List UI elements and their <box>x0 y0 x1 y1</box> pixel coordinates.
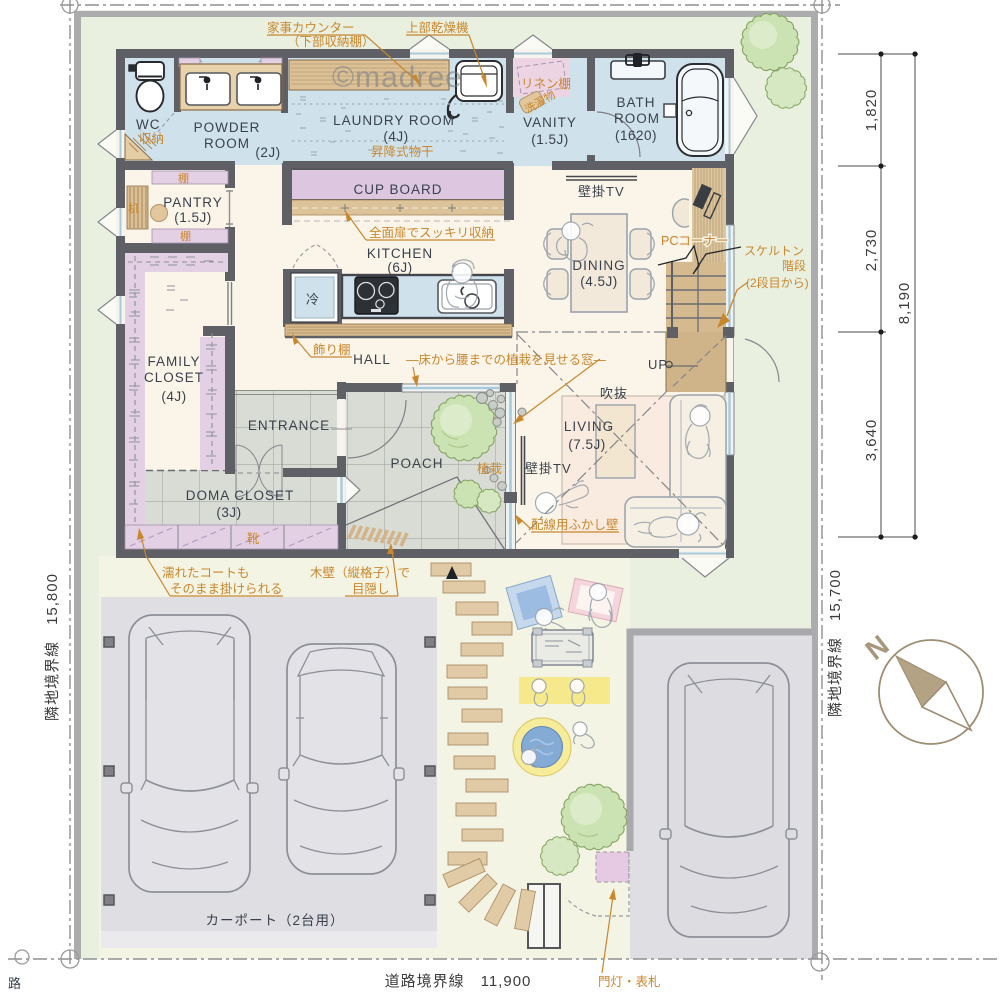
svg-text:©madree: ©madree <box>332 61 463 94</box>
svg-text:—床から腰までの植栽を見せる窓—: —床から腰までの植栽を見せる窓— <box>406 352 607 367</box>
svg-text:CLOSET: CLOSET <box>144 370 204 385</box>
svg-text:DINING: DINING <box>572 258 625 273</box>
svg-text:ENTRANCE: ENTRANCE <box>248 418 330 433</box>
svg-text:2,730: 2,730 <box>863 229 880 272</box>
svg-text:全面扉でスッキリ収納: 全面扉でスッキリ収納 <box>369 225 494 240</box>
svg-text:道路境界線 11,900: 道路境界線 11,900 <box>385 972 532 990</box>
svg-text:BATH: BATH <box>616 95 655 110</box>
svg-text:1,820: 1,820 <box>863 89 880 132</box>
svg-text:KITCHEN: KITCHEN <box>367 246 433 261</box>
svg-text:路: 路 <box>8 976 21 991</box>
svg-text:(4J): (4J) <box>161 389 186 404</box>
svg-text:植栽: 植栽 <box>477 461 503 476</box>
svg-text:WC: WC <box>136 117 161 132</box>
svg-text:隣地境界線 15,800: 隣地境界線 15,800 <box>43 573 61 721</box>
svg-text:POACH: POACH <box>390 456 443 471</box>
svg-text:VANITY: VANITY <box>523 115 577 130</box>
svg-text:門灯・表札: 門灯・表札 <box>598 975 661 989</box>
svg-text:DOMA CLOSET: DOMA CLOSET <box>186 488 295 503</box>
svg-text:机: 机 <box>128 201 139 215</box>
svg-text:(7.5J): (7.5J) <box>568 437 606 452</box>
svg-text:靴: 靴 <box>247 532 260 546</box>
svg-text:配線用ふかし壁: 配線用ふかし壁 <box>531 517 619 532</box>
svg-text:上部乾燥機: 上部乾燥機 <box>406 20 469 35</box>
svg-text:(1620): (1620) <box>615 128 657 143</box>
svg-text:PCコーナー: PCコーナー <box>661 234 728 248</box>
svg-text:ROOM: ROOM <box>204 136 250 151</box>
svg-text:カーポート（2台用）: カーポート（2台用） <box>205 913 344 928</box>
svg-text:階段: 階段 <box>782 258 806 273</box>
svg-text:棚: 棚 <box>178 171 189 185</box>
svg-text:濡れたコートも: 濡れたコートも <box>162 566 250 580</box>
svg-text:LIVING: LIVING <box>564 419 614 434</box>
svg-text:(4J): (4J) <box>383 129 408 144</box>
svg-text:収納: 収納 <box>139 132 164 146</box>
svg-text:HALL: HALL <box>353 352 391 367</box>
svg-text:飾り棚: 飾り棚 <box>313 342 351 357</box>
svg-text:目隠し: 目隠し <box>352 582 390 596</box>
svg-text:CUP BOARD: CUP BOARD <box>353 182 442 197</box>
svg-text:冷: 冷 <box>306 292 320 307</box>
svg-text:LAUNDRY ROOM: LAUNDRY ROOM <box>333 113 455 128</box>
svg-text:(4.5J): (4.5J) <box>580 274 618 289</box>
svg-text:棚: 棚 <box>180 229 191 243</box>
svg-text:壁掛TV: 壁掛TV <box>525 461 572 476</box>
svg-text:（下部収納棚）: （下部収納棚） <box>287 34 375 49</box>
svg-text:そのまま掛けられる: そのまま掛けられる <box>170 581 283 596</box>
svg-text:8,190: 8,190 <box>896 282 913 325</box>
svg-text:壁掛TV: 壁掛TV <box>578 184 625 199</box>
svg-text:隣地境界線 15,700: 隣地境界線 15,700 <box>826 569 844 717</box>
svg-text:家事カウンター: 家事カウンター <box>267 20 355 35</box>
svg-text:(6J): (6J) <box>387 260 412 275</box>
svg-text:POWDER: POWDER <box>194 120 261 135</box>
svg-text:3,640: 3,640 <box>863 419 880 462</box>
svg-text:吹抜: 吹抜 <box>600 386 628 401</box>
svg-text:リネン棚: リネン棚 <box>521 76 571 91</box>
svg-text:(1.5J): (1.5J) <box>531 132 569 147</box>
svg-text:(2J): (2J) <box>255 145 280 160</box>
svg-text:昇降式物干: 昇降式物干 <box>371 145 434 159</box>
svg-text:(3J): (3J) <box>216 505 241 520</box>
svg-text:FAMILY: FAMILY <box>147 354 200 369</box>
svg-text:スケルトン: スケルトン <box>744 244 804 258</box>
svg-text:(2段目から): (2段目から) <box>746 275 809 290</box>
svg-text:UP: UP <box>648 357 668 372</box>
svg-text:(1.5J): (1.5J) <box>174 210 212 225</box>
svg-text:ROOM: ROOM <box>614 111 660 126</box>
svg-text:PANTRY: PANTRY <box>163 195 223 210</box>
